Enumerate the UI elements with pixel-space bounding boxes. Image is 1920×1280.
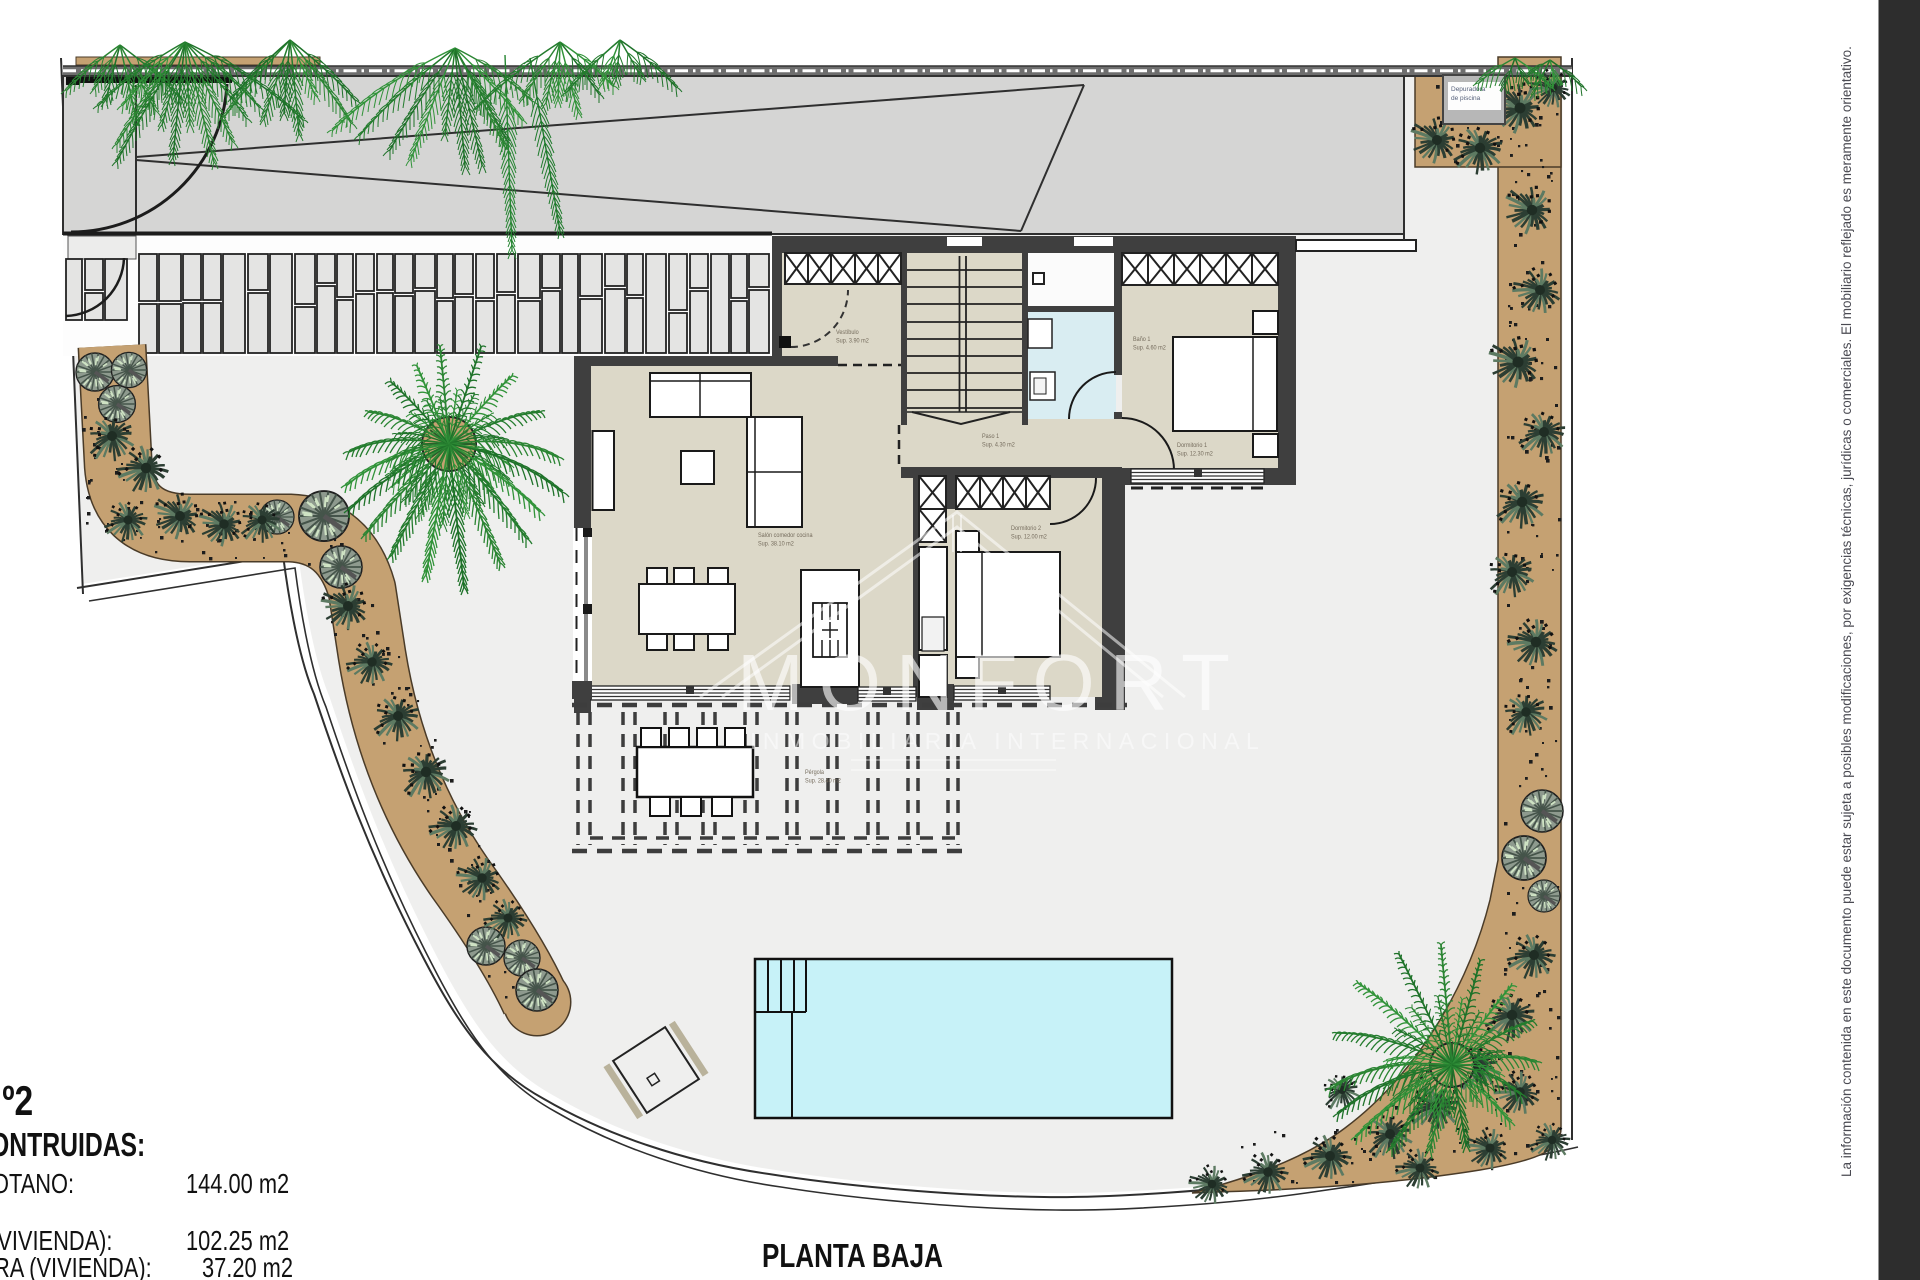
svg-text:37.20 m2: 37.20 m2 bbox=[202, 1252, 293, 1280]
svg-text:144.00 m2: 144.00 m2 bbox=[186, 1168, 289, 1199]
svg-text:Depuradora: Depuradora bbox=[1451, 86, 1486, 93]
svg-text:Sup. 4.30 m2: Sup. 4.30 m2 bbox=[982, 442, 1015, 448]
svg-text:OTANO:: OTANO: bbox=[0, 1168, 74, 1199]
svg-text:Sup. 12.30 m2: Sup. 12.30 m2 bbox=[1177, 451, 1213, 457]
svg-text:Sup. 38.10 m2: Sup. 38.10 m2 bbox=[758, 541, 794, 547]
svg-text:Sup. 3.90 m2: Sup. 3.90 m2 bbox=[836, 338, 869, 344]
svg-text:de piscina: de piscina bbox=[1451, 95, 1481, 102]
svg-text:Sup. 4.60 m2: Sup. 4.60 m2 bbox=[1133, 345, 1166, 351]
svg-text:RA (VIVIENDA):: RA (VIVIENDA): bbox=[0, 1252, 152, 1280]
svg-text:Salón comedor cocina: Salón comedor cocina bbox=[758, 533, 813, 539]
svg-text:Pérgola: Pérgola bbox=[805, 770, 825, 776]
svg-text:Dormitorio 2: Dormitorio 2 bbox=[1011, 526, 1042, 532]
svg-text:La información contenida en es: La información contenida en este documen… bbox=[1839, 46, 1854, 1177]
svg-text:ONTRUIDAS:: ONTRUIDAS: bbox=[0, 1128, 145, 1164]
svg-text:Paso 1: Paso 1 bbox=[982, 434, 1000, 440]
svg-text:PLANTA BAJA: PLANTA BAJA bbox=[762, 1238, 943, 1275]
svg-text:INMOBILIARIA INTERNACIONAL: INMOBILIARIA INTERNACIONAL bbox=[750, 728, 1265, 754]
svg-text:Sup. 28.40 m2: Sup. 28.40 m2 bbox=[805, 778, 841, 784]
svg-text:MONFORT: MONFORT bbox=[737, 638, 1245, 727]
svg-text:Dormitorio 1: Dormitorio 1 bbox=[1177, 443, 1208, 449]
svg-text:Sup. 12.00 m2: Sup. 12.00 m2 bbox=[1011, 534, 1047, 540]
svg-text:Nº2: Nº2 bbox=[0, 1079, 33, 1125]
svg-text:Baño 1: Baño 1 bbox=[1133, 337, 1151, 343]
svg-text:Vestíbulo: Vestíbulo bbox=[836, 330, 859, 336]
